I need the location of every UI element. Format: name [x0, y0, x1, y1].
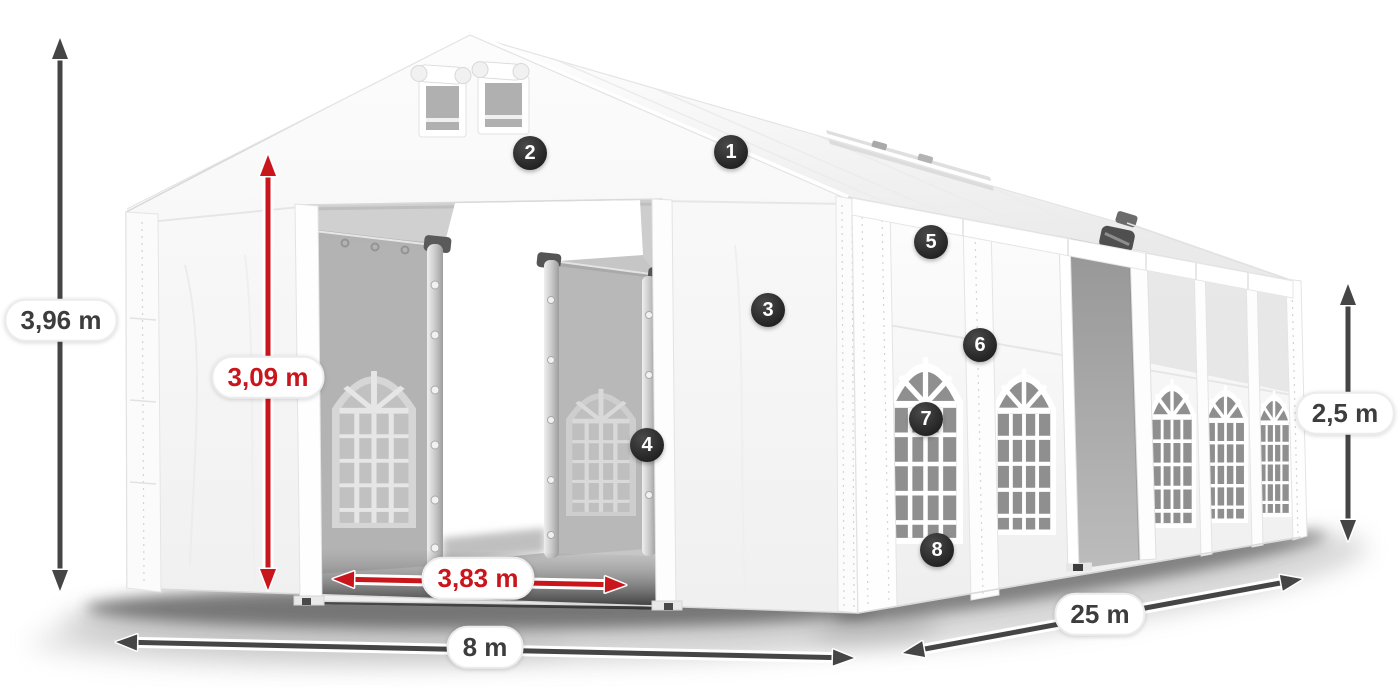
- feature-badge-4[interactable]: 4: [630, 428, 664, 462]
- feature-badge-1[interactable]: 1: [714, 135, 748, 169]
- dimension-label-entrance-width: 3,83 m: [422, 557, 535, 600]
- feature-badge-2[interactable]: 2: [513, 136, 547, 170]
- feature-badge-5[interactable]: 5: [914, 225, 948, 259]
- dimension-label-front-width: 8 m: [447, 626, 524, 669]
- dimension-label-entrance-height: 3,09 m: [212, 356, 325, 399]
- tent-illustration: [0, 0, 1400, 700]
- feature-badge-8[interactable]: 8: [920, 533, 954, 567]
- feature-badge-6[interactable]: 6: [963, 328, 997, 362]
- feature-badge-3[interactable]: 3: [751, 293, 785, 327]
- entrance-left-post: [295, 204, 322, 602]
- tent-dimension-diagram: 3,96 m 3,09 m 3,83 m 8 m 25 m 2,5 m 1 2 …: [0, 0, 1400, 700]
- dimension-label-side-length: 25 m: [1054, 593, 1145, 636]
- side-window-1: [888, 357, 963, 544]
- gable-vent-roll-1: [410, 64, 471, 85]
- side-door-opening: [1059, 225, 1156, 572]
- dimension-label-side-height: 2,5 m: [1296, 392, 1395, 435]
- dimension-label-total-height: 3,96 m: [5, 299, 118, 342]
- entrance-right-post: [652, 199, 676, 607]
- feature-badge-7[interactable]: 7: [909, 402, 943, 436]
- gable-vent-2: [478, 76, 529, 134]
- gable-vent-1: [419, 79, 466, 137]
- gable-vent-roll-2: [472, 60, 530, 81]
- side-window-2: [992, 369, 1056, 535]
- tent-interior: [298, 192, 672, 610]
- side-window-3: [1148, 379, 1196, 528]
- side-corner-strip: [852, 198, 897, 613]
